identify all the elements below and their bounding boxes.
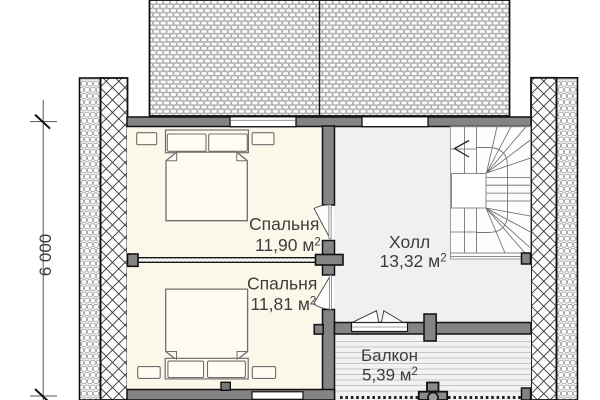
svg-text:Спальня: Спальня	[249, 214, 319, 234]
svg-text:11,81 м2: 11,81 м2	[251, 294, 317, 314]
svg-text:13,32 м2: 13,32 м2	[380, 251, 447, 271]
svg-text:11,90 м2: 11,90 м2	[255, 235, 321, 255]
svg-text:Спальня: Спальня	[247, 274, 317, 294]
svg-text:Балкон: Балкон	[361, 346, 418, 365]
svg-text:Холл: Холл	[389, 232, 430, 252]
svg-text:6 000: 6 000	[36, 234, 55, 277]
svg-text:5,39 м2: 5,39 м2	[362, 366, 418, 385]
